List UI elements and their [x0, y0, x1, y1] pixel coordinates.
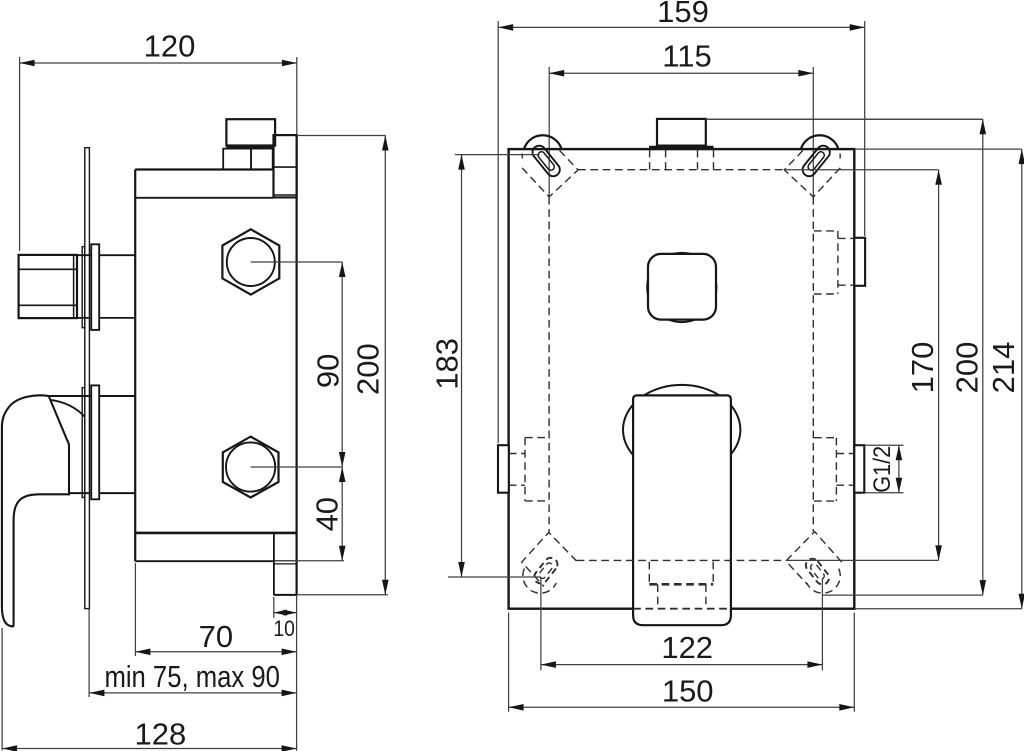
- svg-text:10: 10: [273, 616, 295, 641]
- svg-text:214: 214: [986, 342, 1021, 394]
- svg-text:170: 170: [905, 342, 940, 394]
- svg-text:200: 200: [950, 342, 985, 394]
- svg-text:122: 122: [661, 630, 713, 665]
- svg-text:159: 159: [657, 0, 709, 29]
- svg-text:115: 115: [662, 38, 711, 73]
- svg-text:150: 150: [662, 673, 714, 708]
- svg-text:120: 120: [144, 29, 196, 64]
- svg-text:70: 70: [199, 619, 233, 654]
- svg-text:min 75, max 90: min 75, max 90: [104, 659, 280, 694]
- svg-text:G1/2: G1/2: [869, 446, 896, 493]
- svg-text:40: 40: [310, 497, 345, 531]
- svg-text:183: 183: [430, 338, 465, 390]
- svg-text:90: 90: [311, 354, 346, 388]
- svg-text:128: 128: [135, 716, 187, 751]
- svg-text:200: 200: [351, 343, 386, 395]
